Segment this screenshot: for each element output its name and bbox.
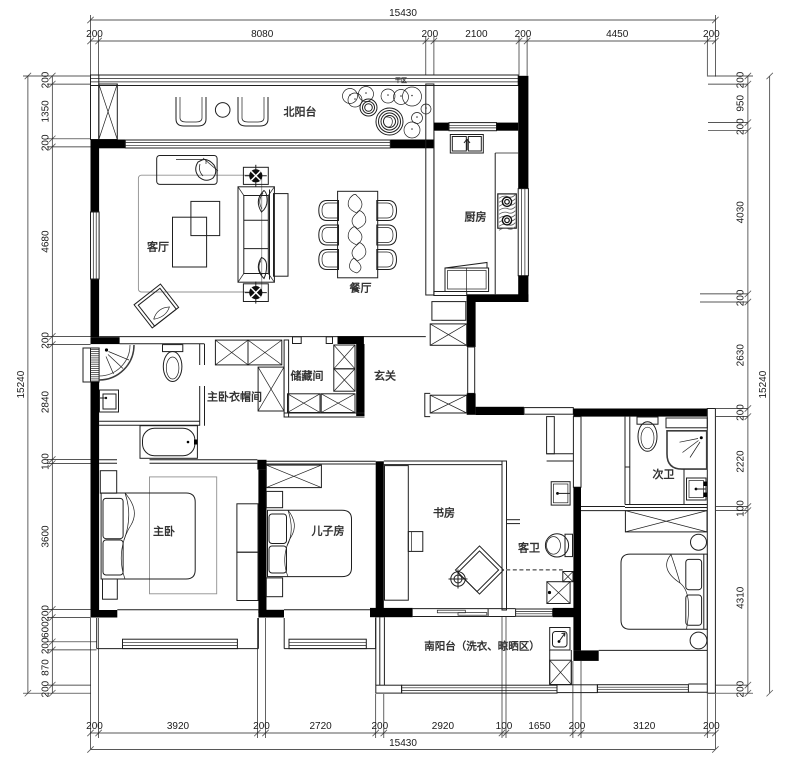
svg-text:南阳台（洗衣、晾晒区）: 南阳台（洗衣、晾晒区）: [424, 640, 540, 653]
svg-text:玄关: 玄关: [374, 369, 396, 383]
svg-text:北阳台: 北阳台: [284, 105, 317, 119]
svg-text:次卫: 次卫: [653, 467, 675, 481]
svg-text:100: 100: [496, 721, 513, 732]
svg-text:书房: 书房: [433, 506, 455, 520]
svg-text:2220: 2220: [736, 450, 747, 473]
svg-text:2920: 2920: [432, 721, 455, 732]
svg-text:1350: 1350: [41, 100, 52, 123]
svg-text:200: 200: [736, 71, 747, 88]
svg-text:200: 200: [41, 134, 52, 151]
svg-text:储藏间: 储藏间: [291, 369, 324, 383]
svg-text:主卧衣帽间: 主卧衣帽间: [207, 390, 262, 404]
svg-text:200: 200: [515, 29, 532, 40]
svg-text:儿子房: 儿子房: [311, 524, 345, 538]
svg-text:200: 200: [569, 721, 586, 732]
svg-text:3600: 3600: [41, 525, 52, 548]
svg-text:4680: 4680: [41, 230, 52, 253]
svg-text:厨房: 厨房: [465, 210, 487, 224]
svg-text:干区: 干区: [395, 77, 407, 85]
svg-text:200: 200: [736, 680, 747, 697]
svg-text:200: 200: [253, 721, 270, 732]
svg-text:200: 200: [736, 289, 747, 306]
svg-text:200: 200: [41, 637, 52, 654]
svg-text:4030: 4030: [736, 201, 747, 224]
svg-text:8080: 8080: [251, 29, 274, 40]
svg-text:3920: 3920: [167, 721, 190, 732]
svg-text:15430: 15430: [389, 738, 417, 749]
svg-text:200: 200: [41, 680, 52, 697]
svg-text:餐厅: 餐厅: [349, 281, 372, 295]
svg-text:600: 600: [41, 621, 52, 638]
svg-text:4310: 4310: [736, 586, 747, 609]
svg-text:200: 200: [703, 721, 720, 732]
svg-text:2100: 2100: [465, 29, 488, 40]
svg-text:客卫: 客卫: [517, 541, 540, 555]
svg-text:15240: 15240: [758, 370, 769, 398]
svg-text:100: 100: [736, 500, 747, 517]
svg-text:3120: 3120: [633, 721, 656, 732]
svg-text:客厅: 客厅: [146, 240, 169, 254]
svg-text:15430: 15430: [389, 8, 417, 19]
svg-text:200: 200: [86, 29, 103, 40]
svg-text:15240: 15240: [16, 370, 27, 398]
svg-text:200: 200: [41, 332, 52, 349]
svg-text:4450: 4450: [606, 29, 629, 40]
svg-text:200: 200: [371, 721, 388, 732]
svg-text:200: 200: [41, 605, 52, 622]
svg-text:100: 100: [41, 453, 52, 470]
svg-text:200: 200: [421, 29, 438, 40]
svg-text:950: 950: [736, 95, 747, 112]
svg-text:2630: 2630: [736, 344, 747, 367]
svg-text:主卧: 主卧: [153, 524, 175, 538]
svg-text:200: 200: [703, 29, 720, 40]
svg-text:2720: 2720: [309, 721, 332, 732]
svg-text:1650: 1650: [528, 721, 551, 732]
svg-text:200: 200: [736, 118, 747, 135]
svg-text:200: 200: [41, 71, 52, 88]
svg-text:200: 200: [736, 404, 747, 421]
svg-text:200: 200: [86, 721, 103, 732]
svg-text:870: 870: [41, 659, 52, 676]
svg-text:2840: 2840: [41, 390, 52, 413]
